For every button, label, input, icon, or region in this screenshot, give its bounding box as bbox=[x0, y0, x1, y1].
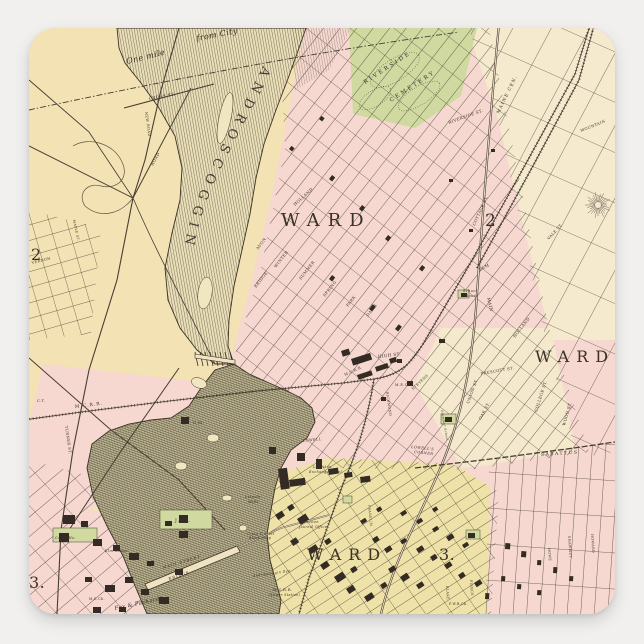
map-label: Court Ho. bbox=[55, 536, 76, 540]
ward-2-number: 2 bbox=[485, 211, 496, 231]
map-label: C.T. bbox=[37, 399, 45, 403]
auburn-ward-2-number: 2 bbox=[31, 245, 42, 264]
map-label: Lewiston bbox=[312, 465, 332, 469]
map-label: Journal Office bbox=[298, 525, 327, 529]
vintage-map-image: ANDROSCOGGIN One milefrom CityCROSS ST.N… bbox=[29, 28, 615, 614]
jail-label: JAIL bbox=[174, 518, 191, 524]
map-label: Block Shop bbox=[248, 536, 271, 540]
map-label: (Lower Station) bbox=[269, 593, 301, 597]
ward-3-label: WARD bbox=[307, 545, 387, 564]
ward-2-label: WARD bbox=[281, 210, 372, 231]
map-label: Mills bbox=[247, 500, 259, 504]
auburn-ward-3-number: 3. bbox=[29, 573, 45, 592]
map-label: House bbox=[464, 294, 478, 298]
map-label: Elm House bbox=[104, 549, 128, 553]
map-label: Exchange Hotel bbox=[308, 470, 342, 474]
map-label: M.E.Ch. bbox=[395, 383, 412, 387]
mcrr-lower-station-label: M.C.R.R. bbox=[273, 588, 292, 592]
map-label: G.M. bbox=[193, 420, 204, 425]
map-label: Lewiston bbox=[300, 520, 319, 524]
ward-east-label: WARD bbox=[535, 347, 615, 366]
map-label: F.W.B.Ch. bbox=[449, 602, 468, 606]
ward-3-number: 3. bbox=[439, 545, 455, 564]
map-label: M.E.Ch. bbox=[89, 597, 105, 601]
map-sticker[interactable]: ANDROSCOGGIN One milefrom CityCROSS ST.N… bbox=[29, 28, 615, 614]
product-photo-background: ANDROSCOGGIN One milefrom CityCROSS ST.N… bbox=[0, 0, 644, 644]
school-house-label: School bbox=[463, 289, 477, 293]
map-label: Lincoln bbox=[244, 495, 261, 499]
